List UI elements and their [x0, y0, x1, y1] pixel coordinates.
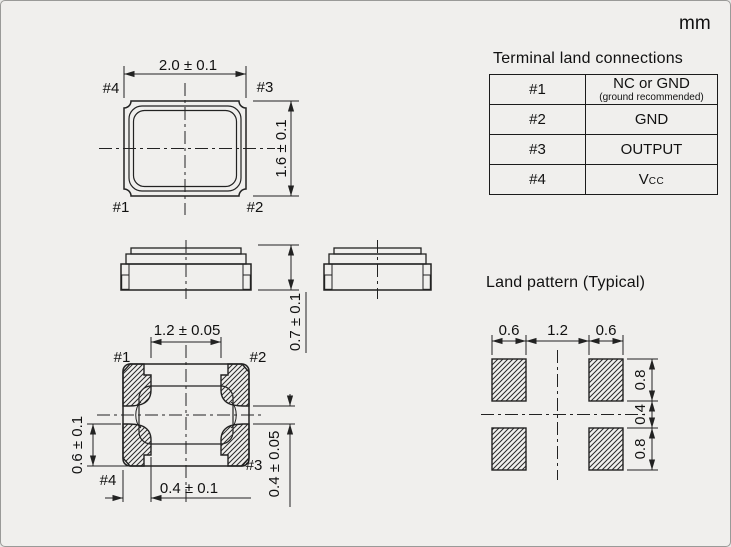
land-pattern-pad-top-right — [589, 359, 623, 401]
bottom-view: 1.2 ± 0.05 0.6 ± 0.1 0.4 ± 0.1 0.4 ± 0.0… — [69, 322, 295, 507]
vcc-main: V — [639, 171, 649, 188]
side-front-right-terminal — [243, 275, 250, 289]
side-view-end — [324, 240, 431, 299]
side-view-front — [121, 240, 251, 299]
land-pattern-pad-width-left: 0.6 — [499, 322, 520, 339]
connection-cell: OUTPUT — [586, 135, 718, 165]
land-pattern-pad-gap: 0.4 — [632, 404, 649, 425]
land-pattern: 0.6 1.2 0.6 0.8 0.4 0.8 — [481, 322, 658, 480]
unit-label: mm — [679, 13, 711, 35]
top-view-height-dimension: 1.6 ± 0.1 — [273, 119, 290, 177]
side-end-left-terminal — [325, 275, 332, 289]
land-pattern-title: Land pattern (Typical) — [486, 274, 645, 292]
bottom-view-left-dimension: 0.6 ± 0.1 — [69, 416, 86, 474]
pin-number-cell: #4 — [490, 165, 586, 195]
package-dimension-sheet: 2.0 ± 0.1 1.6 ± 0.1 #4 #3 #1 #2 — [0, 0, 731, 547]
bottom-view-pin4-label: #4 — [100, 472, 117, 489]
terminal-table-title: Terminal land connections — [493, 50, 683, 68]
pin-number-cell: #3 — [490, 135, 586, 165]
top-view: 2.0 ± 0.1 1.6 ± 0.1 #4 #3 #1 #2 — [99, 57, 299, 216]
terminal-land-connections-table: #1 NC or GND (ground recommended) #2 GND… — [489, 74, 718, 195]
bottom-view-bottom-dimension: 0.4 ± 0.1 — [160, 480, 218, 497]
connection-text: NC or GND — [613, 75, 690, 92]
land-pattern-pad-width-right: 0.6 — [596, 322, 617, 339]
bottom-view-pin3-label: #3 — [246, 457, 263, 474]
bottom-view-top-dimension: 1.2 ± 0.05 — [154, 322, 221, 339]
table-row: #4 VCC — [490, 165, 718, 195]
table-row: #2 GND — [490, 105, 718, 135]
connection-cell: NC or GND (ground recommended) — [586, 75, 718, 105]
land-pattern-pad-top-left — [492, 359, 526, 401]
table-row: #1 NC or GND (ground recommended) — [490, 75, 718, 105]
pin-number-cell: #1 — [490, 75, 586, 105]
pin-number-cell: #2 — [490, 105, 586, 135]
land-pattern-pad-height-top: 0.8 — [632, 370, 649, 391]
land-pattern-pad-bottom-left — [492, 428, 526, 470]
bottom-view-right-dimension: 0.4 ± 0.05 — [266, 431, 283, 498]
side-view-height-dimension: 0.7 ± 0.1 — [287, 293, 304, 351]
side-view-height-dim: 0.7 ± 0.1 — [258, 245, 306, 353]
bottom-view-pin2-label: #2 — [250, 349, 267, 366]
top-view-pin3-label: #3 — [257, 79, 274, 96]
bottom-view-pad4 — [123, 424, 151, 466]
connection-note: (ground recommended) — [586, 93, 717, 103]
connection-cell: GND — [586, 105, 718, 135]
connection-cell: VCC — [586, 165, 718, 195]
vcc-subscript: CC — [649, 176, 664, 187]
side-front-left-terminal — [122, 275, 129, 289]
top-view-pin1-label: #1 — [113, 199, 130, 216]
top-view-width-dimension: 2.0 ± 0.1 — [159, 57, 217, 74]
bottom-view-pad1 — [123, 364, 151, 406]
top-view-pin4-label: #4 — [103, 80, 120, 97]
land-pattern-pad-bottom-right — [589, 428, 623, 470]
top-view-pin2-label: #2 — [247, 199, 264, 216]
bottom-view-pad2 — [221, 364, 249, 406]
bottom-view-pin1-label: #1 — [114, 349, 131, 366]
land-pattern-pad-height-bottom: 0.8 — [632, 439, 649, 460]
side-end-right-terminal — [423, 275, 430, 289]
table-row: #3 OUTPUT — [490, 135, 718, 165]
land-pattern-pad-pitch: 1.2 — [547, 322, 568, 339]
